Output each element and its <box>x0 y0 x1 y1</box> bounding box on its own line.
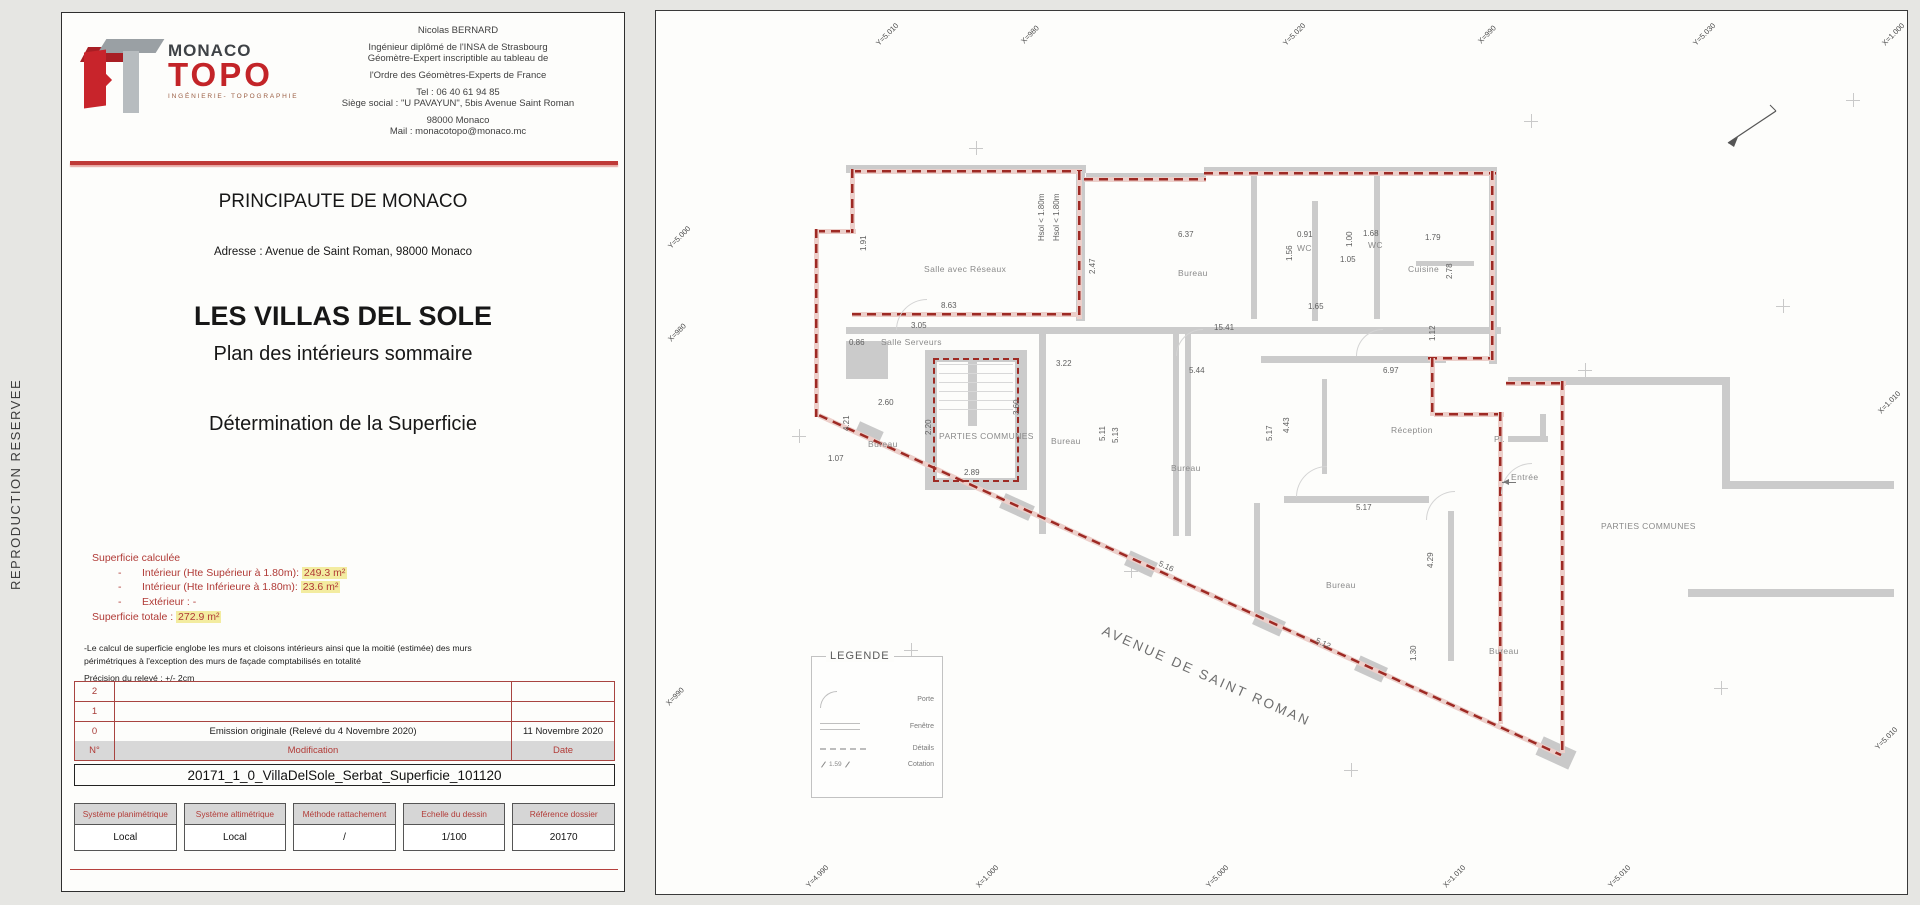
revision-row: 0 Emission originale (Relevé du 4 Novemb… <box>75 722 614 741</box>
bottom-red-rule <box>70 869 618 870</box>
revision-modification <box>115 682 512 701</box>
revision-date-header: Date <box>512 741 614 760</box>
spec-cell: Méthode rattachement / <box>293 803 396 851</box>
dimension-label: Hsol < 1.80m <box>1037 194 1046 241</box>
survey-cross-icon <box>1524 114 1538 128</box>
logo-text-topo: TOPO <box>168 61 308 89</box>
legend-item-porte: Porte <box>917 696 934 703</box>
revision-date: 11 Novembre 2020 <box>512 722 614 741</box>
grid-coordinate-label: Y=5.000 <box>666 224 692 250</box>
revision-mod-header: Modification <box>115 741 512 760</box>
survey-cross-icon <box>969 141 983 155</box>
revision-header-row: N° Modification Date <box>75 741 614 760</box>
grid-coordinate-label: X=980 <box>666 322 688 344</box>
window-symbol-icon <box>820 723 860 730</box>
boundary-dashed-line <box>1560 381 1565 753</box>
dimension-label: 4.29 <box>1426 552 1435 568</box>
title-block-sheet: MONACO TOPO INGÉNIERIE- TOPOGRAPHIE Nico… <box>61 12 625 892</box>
spec-label: Système altimétrique <box>185 804 286 825</box>
grid-coordinate-label: Y=5.010 <box>1606 863 1632 889</box>
wall-segment <box>1322 379 1327 474</box>
address-line: Adresse : Avenue de Saint Roman, 98000 M… <box>62 246 624 258</box>
wall-segment <box>1688 589 1894 597</box>
dimension-label: 1.91 <box>859 235 868 251</box>
grid-coordinate-label: Y=5.030 <box>1691 21 1717 47</box>
revision-date <box>512 702 614 721</box>
revision-modification: Emission originale (Relevé du 4 Novembre… <box>115 722 512 741</box>
legend-item-fenetre: Fenêtre <box>910 723 934 730</box>
spec-table: Système planimétrique Local Système alti… <box>74 803 615 851</box>
wall-segment <box>1185 334 1191 536</box>
spec-value: Local <box>75 825 176 850</box>
dimension-label: 2.89 <box>964 468 980 477</box>
room-label: WC <box>1297 243 1312 253</box>
contact-line: Nicolas BERNARD <box>302 25 614 36</box>
grid-coordinate-label: X=1.010 <box>1876 389 1902 415</box>
dimension-label: 2.47 <box>1088 258 1097 274</box>
dimension-label: 5.44 <box>1189 366 1205 375</box>
boundary-dashed-line <box>1490 171 1495 361</box>
boundary-dashed-line <box>852 169 1082 174</box>
dimension-label: 1.56 <box>1285 245 1294 261</box>
dimension-label: 1.12 <box>1428 325 1437 341</box>
contact-line: Tel : 06 40 61 94 85 <box>302 87 614 98</box>
dimension-label: 3.60 <box>1012 399 1021 415</box>
revision-row: 2 <box>75 682 614 702</box>
grid-coordinate-label: Y=5.000 <box>1204 863 1230 889</box>
boundary-dashed-line <box>1084 177 1206 182</box>
room-label: Bureau <box>1326 580 1356 590</box>
spec-value: 20170 <box>513 825 614 850</box>
contact-line: Géomètre-Expert inscriptible au tableau … <box>302 53 614 64</box>
grid-coordinate-label: Y=4.990 <box>804 863 830 889</box>
room-label: Pl. <box>1494 434 1505 444</box>
boundary-dashed-line <box>1434 412 1504 417</box>
revision-row: 1 <box>75 702 614 722</box>
spec-cell: Système altimétrique Local <box>184 803 287 851</box>
room-label: Bureau <box>1171 463 1201 473</box>
door-arc-icon <box>1296 466 1327 497</box>
dimension-label: 2.78 <box>1445 263 1454 279</box>
legend-title: LEGENDE <box>826 650 894 662</box>
plan-subtitle: Plan des intérieurs sommaire <box>62 343 624 366</box>
dimension-label: 8.63 <box>941 301 957 310</box>
wall-segment <box>1173 334 1179 536</box>
revision-num-header: N° <box>75 741 115 760</box>
country-title: PRINCIPAUTE DE MONACO <box>62 191 624 213</box>
room-label: WC <box>1368 240 1383 250</box>
door-symbol-icon <box>820 691 837 708</box>
dimension-label: 2.20 <box>924 419 933 435</box>
details-symbol-icon <box>820 748 866 750</box>
survey-cross-icon <box>1714 681 1728 695</box>
boundary-dashed-line <box>1430 358 1435 416</box>
dimension-label: 5.17 <box>1265 425 1274 441</box>
dimension-label: 2.60 <box>878 398 894 407</box>
dimension-label: 4.21 <box>842 415 851 431</box>
dimension-label: 5.11 <box>1098 426 1107 441</box>
boundary-dashed-line <box>1506 381 1566 386</box>
room-label: Salle Serveurs <box>881 337 942 347</box>
wall-segment <box>1722 481 1894 489</box>
contact-line: Mail : monacotopo@monaco.mc <box>302 126 614 137</box>
grid-coordinate-label: Y=5.010 <box>1873 725 1899 751</box>
boundary-dashed-line <box>852 312 1080 317</box>
grid-coordinate-label: X=1.000 <box>1880 21 1906 47</box>
method-notes: -Le calcul de superficie englobe les mur… <box>84 642 526 685</box>
superficie-item: -Intérieur (Hte Supérieur à 1.80m): 249.… <box>92 566 347 581</box>
note-line: -Le calcul de superficie englobe les mur… <box>84 642 526 669</box>
revision-date <box>512 682 614 701</box>
superficie-total: Superficie totale : 272.9 m² <box>92 610 347 625</box>
wall-segment <box>1284 496 1429 503</box>
contact-line: 98000 Monaco <box>302 115 614 126</box>
room-label: Réception <box>1391 425 1433 435</box>
superficie-block: Superficie calculée -Intérieur (Hte Supé… <box>92 551 347 624</box>
wall-segment <box>846 327 1501 334</box>
header-divider-rule <box>70 161 618 165</box>
dimension-label: 1.79 <box>1425 233 1441 242</box>
surveyor-contact-block: Nicolas BERNARDIngénieur diplômé de l'IN… <box>302 25 614 137</box>
grid-coordinate-label: X=1.000 <box>974 863 1000 889</box>
spec-value: 1/100 <box>404 825 505 850</box>
project-title: LES VILLAS DEL SOLE <box>62 301 624 332</box>
dimension-label: 4.43 <box>1282 417 1291 433</box>
grid-coordinate-label: X=990 <box>1476 24 1498 46</box>
wall-segment <box>1722 377 1730 489</box>
room-label: Entrée <box>1511 472 1538 482</box>
stair-boundary-dashed <box>933 358 1019 482</box>
room-label: Bureau <box>1489 646 1519 656</box>
dimension-label: 5.17 <box>1356 503 1372 512</box>
floor-plan-sheet: AVENUE DE SAINT ROMAN LEGENDE Porte Fenê… <box>655 10 1908 895</box>
spec-value: / <box>294 825 395 850</box>
wall-segment <box>1254 503 1260 615</box>
legend-item-details: Détails <box>913 745 934 752</box>
dimension-label: 1.30 <box>1409 645 1418 661</box>
north-arrow-icon <box>1714 103 1784 158</box>
dimension-label: 6.97 <box>1383 366 1399 375</box>
room-label: Cuisine <box>1408 264 1439 274</box>
revision-number: 1 <box>75 702 115 721</box>
spec-cell: Echelle du dessin 1/100 <box>403 803 506 851</box>
room-label: Bureau <box>1051 436 1081 446</box>
wall-segment <box>1039 334 1046 534</box>
wall-segment <box>1448 511 1454 661</box>
grid-coordinate-label: X=980 <box>1019 24 1041 46</box>
entrance-arrow-icon <box>1502 482 1516 483</box>
revision-modification <box>115 702 512 721</box>
legend-box: LEGENDE Porte Fenêtre Détails 1.59 Cotat… <box>811 656 943 798</box>
wall-segment <box>1261 356 1446 363</box>
survey-cross-icon <box>1578 363 1592 377</box>
contact-line: Ingénieur diplômé de l'INSA de Strasbour… <box>302 42 614 53</box>
dimension-label: 3.22 <box>1056 359 1072 368</box>
spec-label: Méthode rattachement <box>294 804 395 825</box>
boundary-dashed-line <box>814 229 819 417</box>
dimension-label: 0.86 <box>849 338 865 347</box>
survey-cross-icon <box>792 429 806 443</box>
superficie-item: -Extérieur : - <box>92 595 347 610</box>
revision-number: 2 <box>75 682 115 701</box>
contact-line: Siège social : "U PAVAYUN", 5bis Avenue … <box>302 98 614 109</box>
dimension-label: Hsol < 1.80m <box>1052 194 1061 241</box>
spec-label: Système planimétrique <box>75 804 176 825</box>
drawing-filename: 20171_1_0_VillaDelSole_Serbat_Superficie… <box>74 764 615 786</box>
dimension-label: 5.12 <box>1314 636 1332 651</box>
spec-label: Echelle du dessin <box>404 804 505 825</box>
grid-coordinate-label: X=1.010 <box>1441 863 1467 889</box>
room-label: Salle avec Réseaux <box>924 264 1006 274</box>
spec-cell: Référence dossier 20170 <box>512 803 615 851</box>
boundary-dashed-line <box>850 169 855 233</box>
boundary-dashed-line <box>1428 356 1492 361</box>
logo-mark-icon <box>76 33 162 119</box>
dimension-label: 1.68 <box>1363 229 1379 238</box>
dimension-label: 1.65 <box>1308 302 1324 311</box>
grid-coordinate-label: Y=5.020 <box>1281 21 1307 47</box>
logo-subtitle: INGÉNIERIE- TOPOGRAPHIE <box>168 93 308 100</box>
street-label: AVENUE DE SAINT ROMAN <box>1100 623 1313 729</box>
room-label: Bureau <box>1178 268 1208 278</box>
superficie-heading: Superficie calculée <box>92 551 347 566</box>
boundary-dashed-line <box>1077 171 1082 319</box>
survey-cross-icon <box>1776 299 1790 313</box>
room-label: Bureau <box>868 439 898 449</box>
spec-label: Référence dossier <box>513 804 614 825</box>
superficie-item: -Intérieur (Hte Inférieure à 1.80m): 23.… <box>92 580 347 595</box>
dimension-label: 15.41 <box>1214 323 1234 332</box>
grid-coordinate-label: X=990 <box>664 686 686 708</box>
door-arc-icon <box>1426 491 1455 520</box>
spec-cell: Système planimétrique Local <box>74 803 177 851</box>
legend-item-cotation: Cotation <box>908 761 934 768</box>
boundary-dashed-line <box>1498 412 1503 724</box>
contact-line: l'Ordre des Géomètres-Experts de France <box>302 70 614 81</box>
room-label: PARTIES COMMUNES <box>1601 521 1696 531</box>
revision-table: 2 1 0 Emission originale (Relevé du 4 No… <box>74 681 615 761</box>
revision-number: 0 <box>75 722 115 741</box>
dimension-label: 6.37 <box>1178 230 1194 239</box>
dimension-label: 5.13 <box>1111 427 1120 443</box>
dimension-label: 0.91 <box>1297 230 1313 239</box>
superficie-subtitle: Détermination de la Superficie <box>62 413 624 436</box>
wall-segment <box>1540 414 1546 442</box>
spec-value: Local <box>185 825 286 850</box>
survey-cross-icon <box>1344 763 1358 777</box>
reproduction-reservee-label: REPRODUCTION RESERVEE <box>8 330 23 590</box>
room-label: PARTIES COMMUNES <box>939 431 1034 441</box>
wall-segment <box>1251 174 1257 319</box>
monaco-topo-logo: MONACO TOPO INGÉNIERIE- TOPOGRAPHIE <box>76 29 306 125</box>
dimension-label: 1.05 <box>1340 255 1356 264</box>
survey-cross-icon <box>904 643 918 657</box>
dimension-label: 1.07 <box>828 454 844 463</box>
dimension-label: 1.00 <box>1345 231 1354 247</box>
survey-cross-icon <box>1846 93 1860 107</box>
cotation-symbol-icon: 1.59 <box>820 761 878 768</box>
dimension-label: 3.05 <box>911 321 927 330</box>
grid-coordinate-label: Y=5.010 <box>874 21 900 47</box>
boundary-dashed-line <box>1204 171 1496 176</box>
